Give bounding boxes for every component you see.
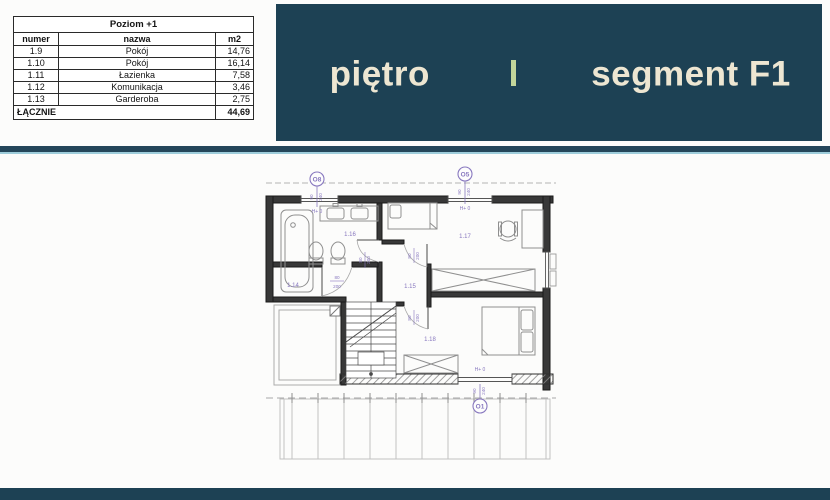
areas-table: Poziom +1 numer nazwa m2 1.9 Pokój 14,76… xyxy=(13,16,254,120)
room-name: Łazienka xyxy=(59,70,216,82)
room-label-1-17: 1.17 xyxy=(459,234,471,240)
col-header-m2: m2 xyxy=(216,33,254,46)
room-area: 7,58 xyxy=(216,70,254,82)
total-value: 44,69 xyxy=(216,106,254,120)
table-title: Poziom +1 xyxy=(14,17,254,33)
table-title-row: Poziom +1 xyxy=(14,17,254,33)
room-name: Pokój xyxy=(59,46,216,58)
window-height-dim: 240 xyxy=(318,193,323,201)
floor-plan: O8 90 240 H+ 0 O5 90 240 H+ 0 H+ 0 90 24… xyxy=(255,158,567,468)
room-number: 1.13 xyxy=(14,94,59,106)
page: { "table": { "title": "Poziom +1", "colu… xyxy=(0,0,830,500)
sink-counter xyxy=(320,204,378,222)
room-area: 3,46 xyxy=(216,82,254,94)
bathtub xyxy=(281,210,313,292)
window-width-dim: 90 xyxy=(457,189,462,195)
wardrobe xyxy=(432,269,535,291)
room-number: 1.9 xyxy=(14,46,59,58)
window-marker-o1: O1 xyxy=(476,404,485,411)
room-number: 1.10 xyxy=(14,58,59,70)
table-total-row: ŁĄCZNIE 44,69 xyxy=(14,106,254,120)
svg-text:80: 80 xyxy=(407,253,412,259)
table-row: 1.11 Łazienka 7,58 xyxy=(14,70,254,82)
svg-text:80: 80 xyxy=(334,275,340,280)
banner-floor-label: piętro xyxy=(276,54,483,94)
svg-text:200: 200 xyxy=(366,256,371,264)
room-label-1-14: 1.14 xyxy=(287,283,299,289)
room-name: Garderoba xyxy=(59,94,216,106)
banner-separator-bar xyxy=(511,60,516,86)
toilet xyxy=(309,242,323,264)
single-bed xyxy=(388,203,437,229)
col-header-nazwa: nazwa xyxy=(59,33,216,46)
sill-height-label: H+ 0 xyxy=(312,209,323,215)
banner-segment-label: segment F1 xyxy=(560,54,822,94)
table-header-row: numer nazwa m2 xyxy=(14,33,254,46)
room-number: 1.12 xyxy=(14,82,59,94)
table-row: 1.12 Komunikacja 3,46 xyxy=(14,82,254,94)
desk-and-chair xyxy=(499,210,544,248)
window-width-dim: 90 xyxy=(472,388,477,394)
room-area: 14,76 xyxy=(216,46,254,58)
svg-text:200: 200 xyxy=(415,314,420,322)
header-divider-bar xyxy=(0,146,830,154)
room-label-1-16: 1.16 xyxy=(344,232,356,238)
room-area: 16,14 xyxy=(216,58,254,70)
room-number: 1.11 xyxy=(14,70,59,82)
room-label-1-15: 1.15 xyxy=(404,284,416,290)
double-bed xyxy=(482,307,535,355)
total-label: ŁĄCZNIE xyxy=(14,106,216,120)
col-header-numer: numer xyxy=(14,33,59,46)
table-row: 1.10 Pokój 16,14 xyxy=(14,58,254,70)
title-banner: piętro segment F1 xyxy=(276,4,822,141)
window-width-dim: 90 xyxy=(309,194,314,200)
window-height-dim: 240 xyxy=(481,387,486,395)
window-marker-o5: O5 xyxy=(461,172,470,179)
bidet xyxy=(331,242,345,264)
room-area: 2,75 xyxy=(216,94,254,106)
room-name: Komunikacja xyxy=(59,82,216,94)
sill-height-label: H+ 0 xyxy=(460,206,471,212)
footer-bar xyxy=(0,488,830,500)
table-row: 1.9 Pokój 14,76 xyxy=(14,46,254,58)
roof-below-area xyxy=(266,393,556,459)
roof-void-area xyxy=(274,305,341,385)
svg-text:80: 80 xyxy=(358,257,363,263)
table-row: 1.13 Garderoba 2,75 xyxy=(14,94,254,106)
svg-text:80: 80 xyxy=(407,315,412,321)
window-height-dim: 240 xyxy=(466,188,471,196)
door-dim-label: 80 200 xyxy=(330,275,344,289)
window-marker-o8: O8 xyxy=(313,177,322,184)
room-name: Pokój xyxy=(59,58,216,70)
wardrobe xyxy=(404,355,458,373)
sill-height-label: H+ 0 xyxy=(475,367,486,373)
staircase xyxy=(346,302,396,378)
svg-text:200: 200 xyxy=(415,252,420,260)
svg-text:200: 200 xyxy=(333,284,341,289)
door-dim-label: 80 200 xyxy=(407,310,420,325)
room-label-1-18: 1.18 xyxy=(424,337,436,343)
